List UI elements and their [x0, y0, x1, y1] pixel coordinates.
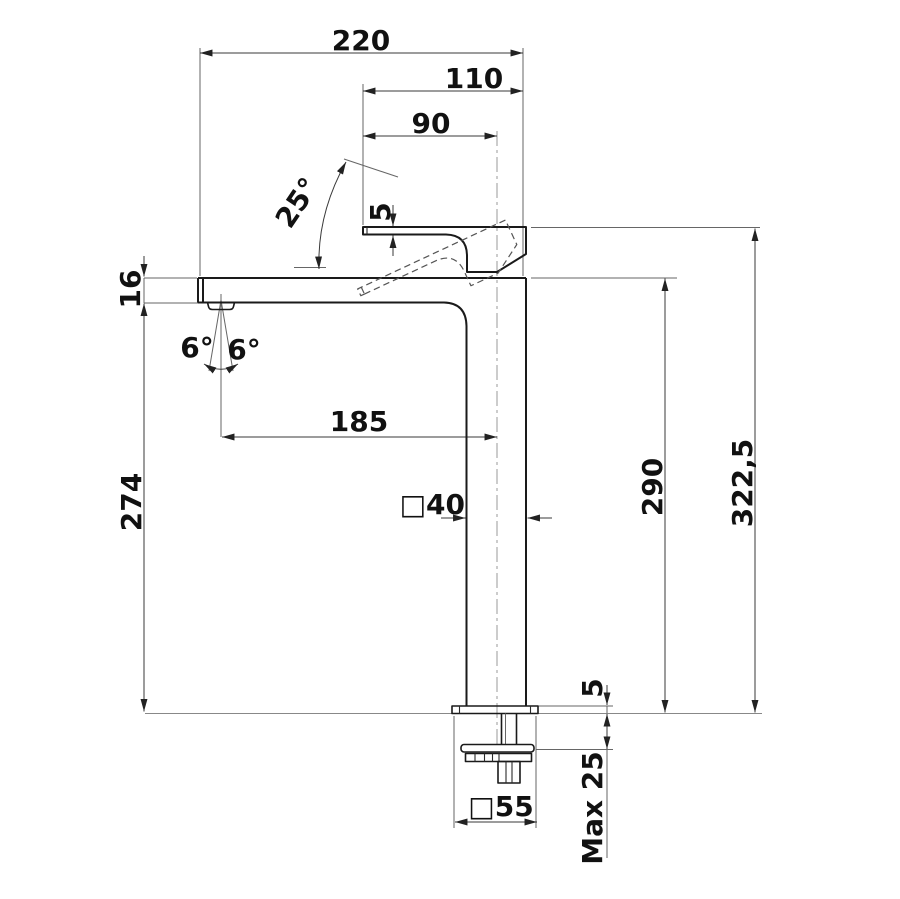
- dim-label-handle-angle: 25°: [269, 172, 326, 234]
- dim-label-spray-angle-left: 6°: [180, 331, 213, 364]
- angle-ref-open-handle: [344, 159, 398, 177]
- faucet-technical-drawing: 220 110 90 25° 5 16 6° 6° 185 274 □40 29…: [0, 0, 900, 899]
- dim-label-max-counter: Max 25: [576, 751, 609, 865]
- dim-label-base-plate-height: 5: [576, 678, 609, 697]
- handle-open-outline: [358, 220, 525, 330]
- threaded-shank: [502, 714, 517, 745]
- spout-end-cap: [198, 278, 203, 303]
- dimension-labels: 220 110 90 25° 5 16 6° 6° 185 274 □40 29…: [114, 24, 759, 865]
- dim-label-spray-angle-right: 6°: [227, 333, 260, 366]
- dimension-lines: [144, 53, 755, 822]
- dim-label-overall-height: 322,5: [726, 439, 759, 528]
- dim-label-handle-to-center: 90: [412, 107, 451, 140]
- dim-label-overall-width: 220: [332, 24, 390, 57]
- faucet-outline: [198, 227, 538, 783]
- dim-label-spout-reach: 185: [330, 405, 388, 438]
- fixing-flange-ticks: [475, 754, 499, 762]
- dim-label-spout-top-height: 290: [636, 458, 669, 516]
- base-plate: [452, 706, 538, 714]
- arc-25deg: [319, 162, 346, 269]
- extension-lines: [144, 48, 762, 858]
- handle-closed: [363, 227, 526, 272]
- fixing-nut-facets: [506, 762, 512, 784]
- dim-label-spout-end-height: 16: [114, 270, 147, 309]
- handle-open-dashed: [358, 220, 525, 330]
- fixing-washer: [461, 745, 534, 753]
- handle-open-cap: [361, 287, 364, 294]
- dim-label-base-section: □55: [468, 790, 533, 823]
- dim-label-handle-thickness: 5: [364, 202, 397, 221]
- dim-label-spout-underside: 274: [115, 473, 148, 531]
- dim-label-handle-width: 110: [445, 62, 503, 95]
- drawing-canvas: 220 110 90 25° 5 16 6° 6° 185 274 □40 29…: [0, 0, 900, 899]
- fixing-nut: [498, 762, 520, 784]
- dim-label-body-section: □40: [400, 488, 465, 521]
